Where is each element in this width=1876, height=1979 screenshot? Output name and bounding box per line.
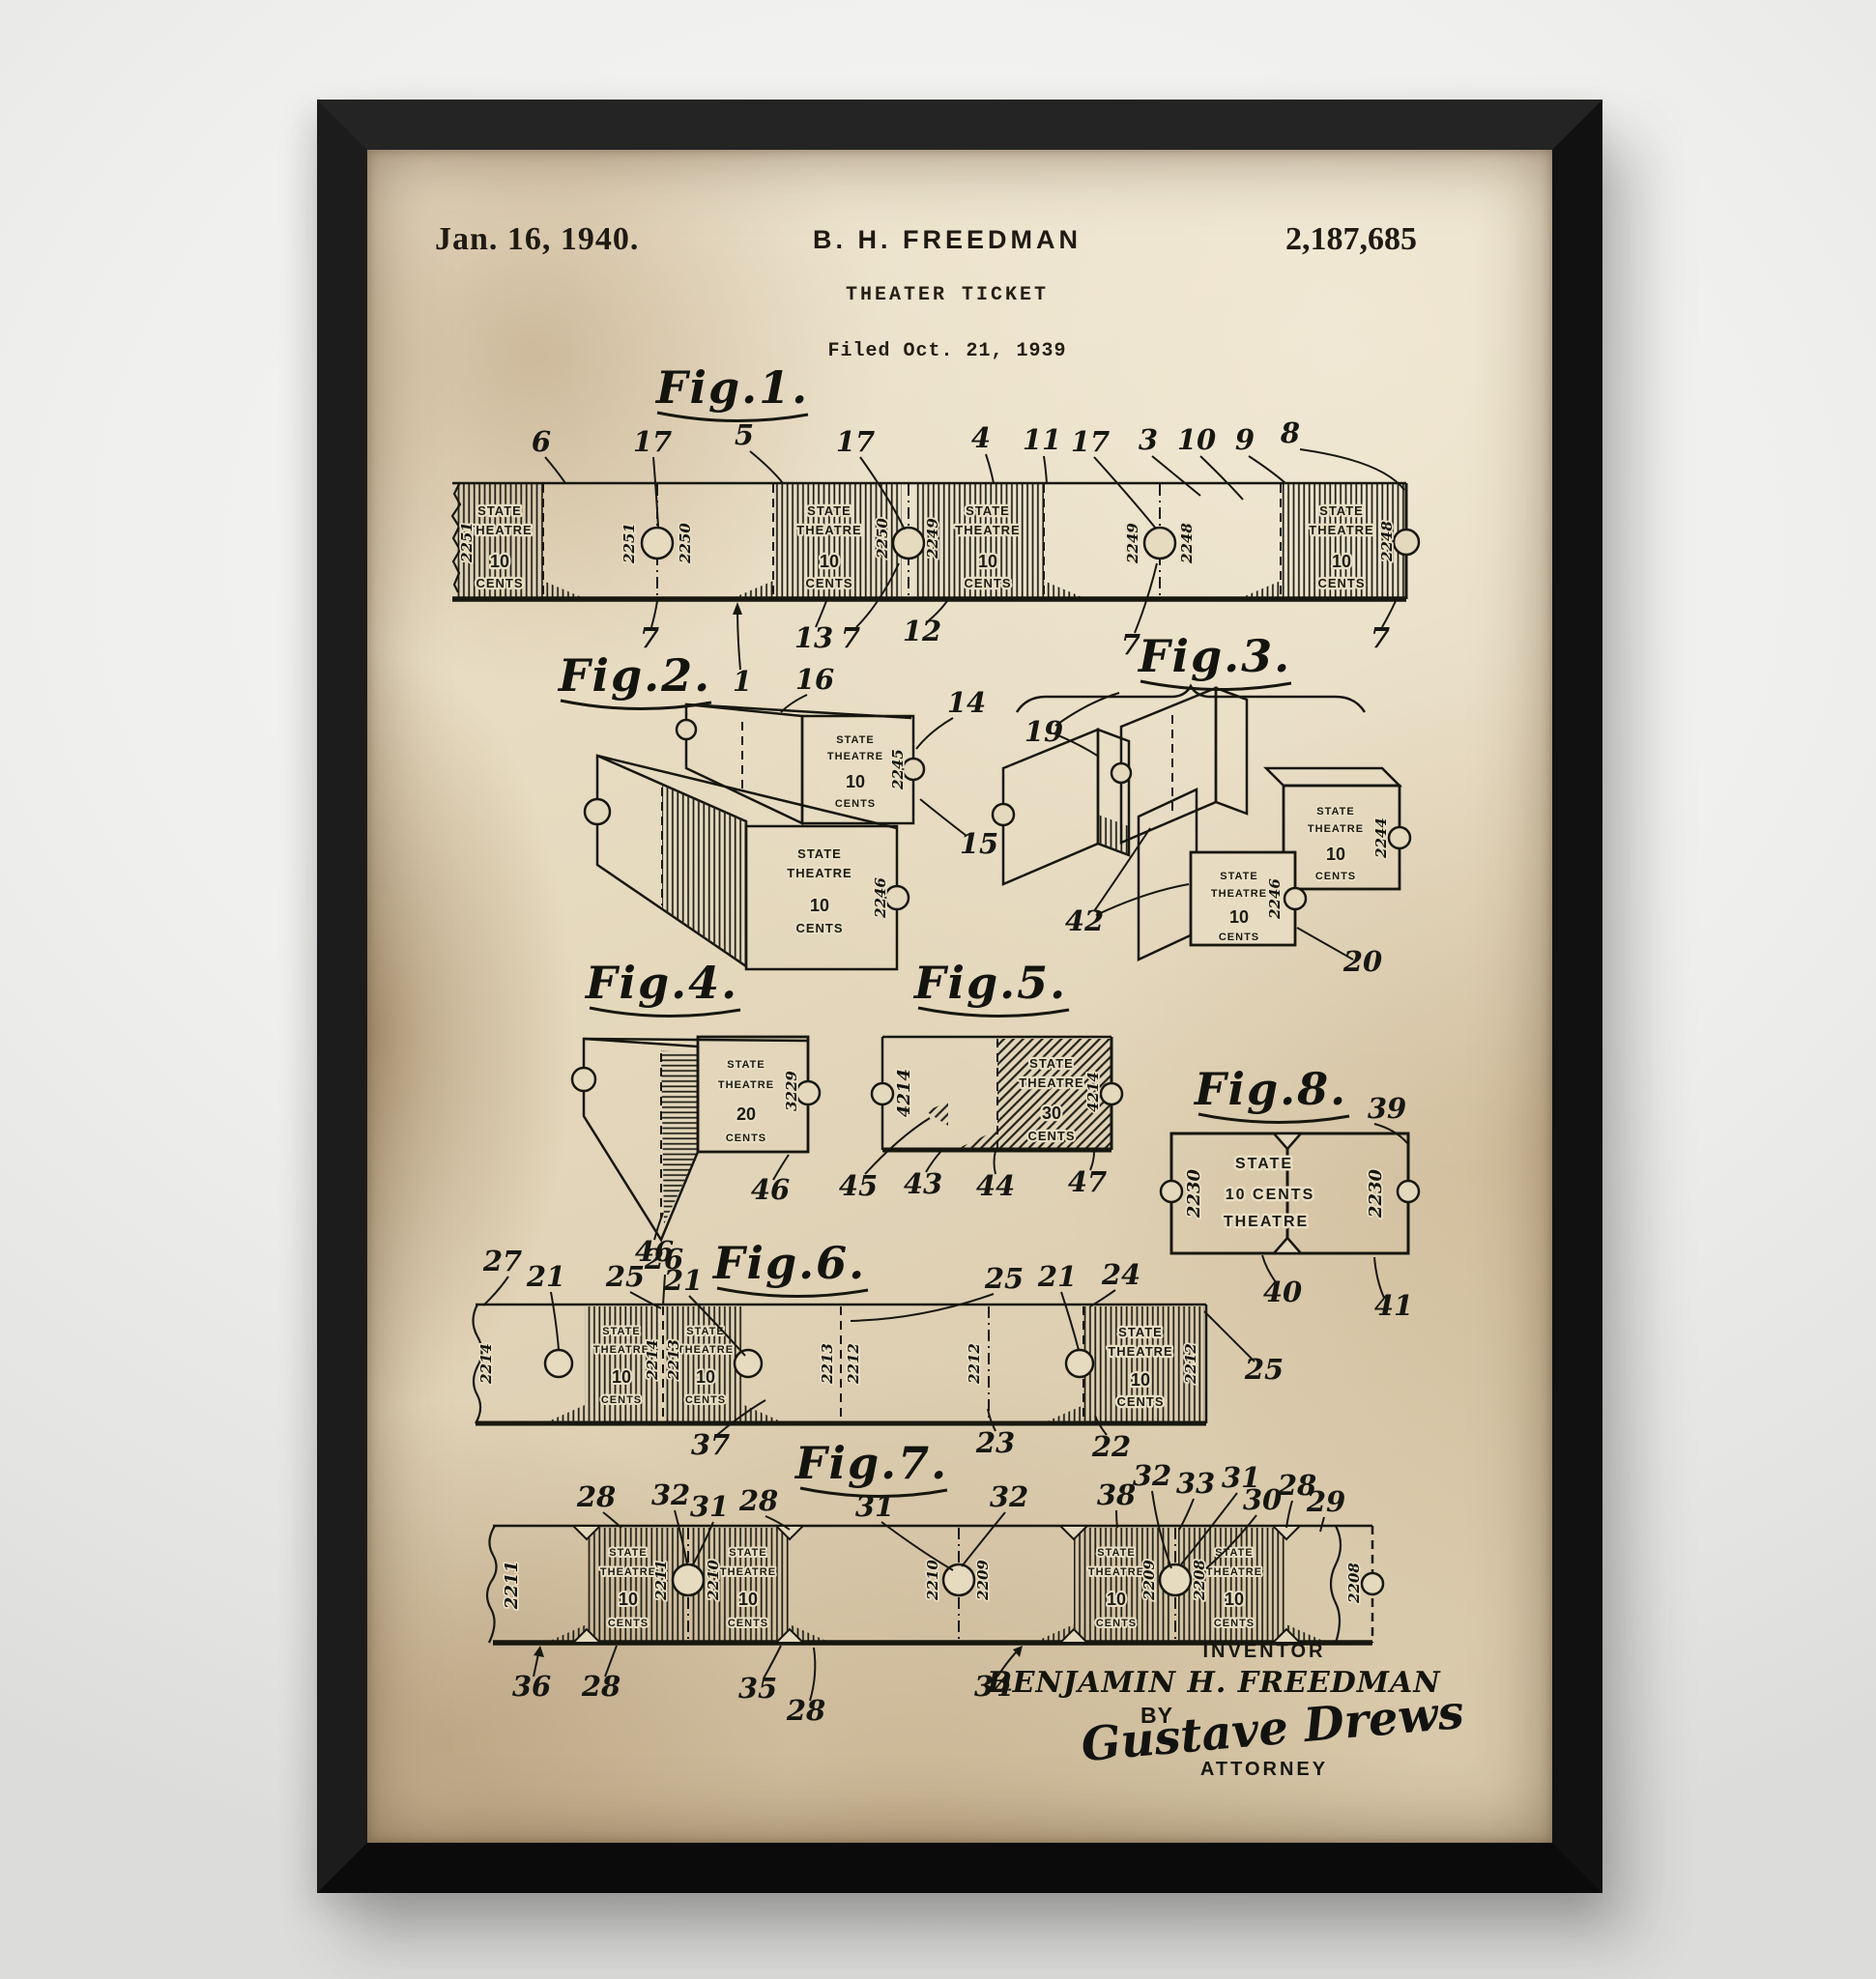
callout-number: 31 (855, 1490, 894, 1523)
fig8-title-swash (1198, 1114, 1349, 1123)
fig3-top-flap (1266, 768, 1400, 786)
callout-number: 13 (794, 621, 833, 654)
callout-leader (781, 695, 807, 712)
ticket-text: CENTS (728, 1618, 768, 1629)
serial-number: 2212 (845, 1343, 862, 1385)
callout-number: 31 (690, 1490, 729, 1523)
figure-4: Fig.4. STATE THEATRE 20 CENTS 3229 46 46 (572, 957, 820, 1268)
callout-number: 3 (1139, 423, 1158, 456)
fig5-hatch-wedge (959, 1130, 997, 1148)
ticket-text: STATE (602, 1326, 640, 1337)
serial-number: 2244 (1372, 817, 1390, 859)
fig1-hatch-wedge (1240, 581, 1281, 598)
fig7-torn-edge (487, 1526, 497, 1643)
callout-number: 35 (738, 1672, 777, 1705)
callout-leader (1200, 456, 1243, 500)
serial-number: 2251 (621, 523, 638, 564)
serial-number: 2213 (819, 1343, 836, 1385)
ticket-text: STATE (729, 1547, 766, 1559)
figure-6: Fig.6. (474, 1237, 1284, 1463)
fig8-title: Fig.8. (1193, 1063, 1347, 1115)
callout-leader (920, 799, 967, 836)
callout-leader (995, 1151, 996, 1174)
fig1-title-swash (657, 413, 808, 421)
fig8-junction-notch (1274, 1238, 1301, 1253)
fig1-hatch-wedge (543, 581, 584, 598)
ticket-text: CENTS (1219, 932, 1259, 943)
fig6-punch-hole (1066, 1350, 1093, 1377)
fig7-punch-hole (1160, 1564, 1191, 1595)
serial-number: 2208 (1191, 1560, 1208, 1601)
fig3-side-notch (1284, 888, 1306, 909)
fig4-title-swash (590, 1008, 740, 1017)
serial-number: 2213 (665, 1339, 682, 1381)
fig7-wavy-divider (1331, 1526, 1341, 1643)
callout-number: 7 (1371, 621, 1390, 654)
ticket-text: STATE (1235, 1156, 1293, 1172)
ticket-text: 10 (1326, 845, 1345, 864)
callout-number: 5 (735, 418, 754, 451)
ticket-text: STATE (477, 503, 522, 518)
ticket-text: CENTS (1027, 1129, 1075, 1143)
ticket-text: CENTS (1096, 1618, 1137, 1629)
callout-number: 16 (795, 663, 834, 696)
callout-number: 20 (1342, 945, 1382, 978)
ticket-text: CENTS (685, 1394, 726, 1406)
callout-leader (962, 1512, 1005, 1566)
callout-leader (1320, 1517, 1324, 1532)
callout-leader (1094, 457, 1156, 529)
callout-leader (545, 457, 565, 483)
fig2-title: Fig.2. (557, 649, 711, 702)
serial-number: 2214 (644, 1339, 661, 1381)
ticket-text: THEATRE (1308, 823, 1364, 835)
ticket-text: CENTS (1214, 1618, 1255, 1629)
fig6-title-swash (717, 1288, 868, 1297)
callout-number: 22 (1091, 1430, 1131, 1463)
callout-number: 47 (1068, 1165, 1107, 1198)
ticket-text: STATE (1029, 1056, 1074, 1071)
patent-drawing: Jan. 16, 1940. B. H. FREEDMAN THEATER TI… (367, 150, 1552, 1843)
fig1-punch-hole (893, 528, 924, 559)
ticket-text: CENTS (476, 576, 523, 590)
patent-date: Jan. 16, 1940. (435, 221, 639, 257)
ticket-text: CENTS (964, 576, 1011, 590)
serial-number: 2249 (1124, 523, 1141, 564)
serial-number: 2209 (974, 1560, 992, 1601)
callout-number: 37 (691, 1428, 730, 1461)
ticket-text: STATE (1097, 1547, 1135, 1559)
callout-number: 28 (786, 1694, 825, 1727)
callout-number: 32 (990, 1480, 1028, 1513)
ticket-text: THEATRE (796, 523, 861, 537)
ticket-text: 10 (738, 1590, 758, 1609)
callout-leader (551, 1292, 559, 1350)
fig7-title: Fig.7. (794, 1437, 948, 1489)
ticket-text: THEATRE (1211, 888, 1267, 900)
ticket-text: THEATRE (718, 1079, 774, 1091)
callout-number: 17 (1071, 425, 1110, 458)
signature-block: INVENTOR BENJAMIN H. FREEDMAN BY Gustave… (986, 1641, 1466, 1780)
callout-number: 17 (633, 425, 672, 458)
callout-number: 25 (984, 1262, 1024, 1295)
serial-number: 4214 (1084, 1072, 1102, 1112)
ticket-text: THEATRE (1088, 1566, 1144, 1578)
fig1-punch-hole (642, 528, 673, 559)
picture-frame: Jan. 16, 1940. B. H. FREEDMAN THEATER TI… (317, 100, 1602, 1893)
callout-number: 9 (1235, 423, 1255, 456)
ticket-text: STATE (1118, 1325, 1163, 1339)
ticket-text: 10 (978, 552, 997, 571)
ticket-text: 10 (1229, 907, 1249, 927)
ticket-text: STATE (966, 503, 1010, 518)
ticket-text: STATE (1220, 871, 1257, 882)
ticket-text: 10 (846, 772, 865, 791)
callout-number: 33 (1176, 1467, 1215, 1500)
serial-number: 2212 (1182, 1343, 1199, 1385)
ticket-text: STATE (797, 846, 842, 861)
callout-number: 12 (903, 615, 941, 647)
serial-number: 2230 (1366, 1168, 1386, 1219)
ticket-text: THEATRE (1108, 1344, 1172, 1359)
fig6-punch-hole (735, 1350, 762, 1377)
fig6-hatch-wedge (548, 1405, 585, 1421)
fig2-side-notch (585, 799, 610, 824)
patent-header: Jan. 16, 1940. B. H. FREEDMAN THEATER TI… (435, 221, 1417, 362)
callout-number: 8 (1280, 416, 1300, 449)
fig7-punch-hole (943, 1564, 974, 1595)
ticket-text: THEATRE (787, 866, 851, 880)
fig2-side-notch (677, 720, 696, 739)
serial-number: 2212 (966, 1343, 983, 1385)
fig3-side-notch (993, 804, 1014, 825)
callout-number: 25 (605, 1260, 645, 1293)
figure-8: Fig.8. 2230 2230 STATE 10 CENTS THEATRE … (1161, 1063, 1419, 1322)
patent-title: THEATER TICKET (846, 284, 1049, 306)
ticket-text: 10 (1332, 552, 1351, 571)
fig2-open-edge (597, 756, 897, 828)
ticket-text: 10 (1107, 1590, 1126, 1609)
fig8-side-notch (1161, 1181, 1182, 1202)
attorney-label: ATTORNEY (1200, 1759, 1328, 1780)
callout-number: 4 (971, 421, 991, 454)
fig8-side-notch (1398, 1181, 1419, 1202)
ticket-text: THEATRE (593, 1344, 649, 1356)
ticket-text: CENTS (795, 921, 843, 935)
callout-leader (916, 718, 953, 749)
callout-leader (1204, 1311, 1255, 1362)
photo-scene: Jan. 16, 1940. B. H. FREEDMAN THEATER TI… (0, 0, 1876, 1979)
inventor-label: INVENTOR (1203, 1641, 1326, 1662)
callout-number: 6 (532, 425, 551, 458)
fig3-side-notch (1389, 827, 1410, 848)
ticket-text: 10 (612, 1367, 631, 1387)
serial-number: 2230 (1184, 1168, 1204, 1219)
callout-leader (483, 1276, 508, 1305)
fig5-side-notch (1101, 1083, 1122, 1104)
ticket-text: 10 CENTS (1226, 1187, 1314, 1203)
patent-paper: Jan. 16, 1940. B. H. FREEDMAN THEATER TI… (367, 150, 1552, 1843)
ticket-text: STATE (807, 503, 851, 518)
ticket-text: CENTS (601, 1394, 642, 1406)
callout-number: 36 (512, 1670, 551, 1703)
ticket-text: THEATRE (1019, 1076, 1083, 1090)
callout-number: 27 (482, 1245, 522, 1277)
ticket-text: THEATRE (955, 523, 1020, 537)
serial-number: 2246 (872, 877, 889, 919)
callout-leader (1249, 456, 1285, 483)
fig3-blank-ticket-side (1216, 688, 1247, 814)
callout-number: 32 (1133, 1459, 1171, 1492)
callout-number: 46 (751, 1173, 790, 1206)
ticket-text: 10 (1131, 1370, 1150, 1390)
callout-number: 10 (1177, 423, 1216, 456)
serial-number: 2210 (924, 1560, 941, 1601)
patent-inventor: B. H. FREEDMAN (813, 225, 1082, 254)
callout-number: 15 (960, 827, 998, 860)
serial-number: 2208 (1345, 1563, 1363, 1604)
callout-number: 44 (976, 1169, 1015, 1202)
callout-leader (865, 1118, 930, 1174)
ticket-text: STATE (1215, 1547, 1253, 1559)
callout-number: 17 (836, 425, 875, 458)
patent-number: 2,187,685 (1285, 221, 1417, 257)
serial-number: 2211 (502, 1561, 522, 1610)
figure-2: Fig.2. STATE THEATRE 10 CENTS 2246 (557, 649, 998, 969)
callout-number: 11 (1023, 423, 1061, 456)
fig6-punch-hole (545, 1350, 572, 1377)
ticket-text: THEATRE (827, 751, 883, 762)
fig6-hatch-wedge (744, 1405, 781, 1421)
callout-leader (737, 606, 740, 670)
fig3-hatch-wedge (1098, 815, 1129, 855)
serial-number: 3229 (783, 1071, 800, 1111)
ticket-text: THEATRE (600, 1566, 656, 1578)
fig3-blank-ticket (1003, 730, 1098, 884)
fig4-side-notch (572, 1068, 595, 1091)
serial-number: 2250 (874, 518, 891, 559)
serial-number: 2248 (1378, 521, 1396, 562)
ticket-text: 10 (1225, 1590, 1244, 1609)
fig6-hatch-wedge (1047, 1405, 1083, 1421)
callout-number: 21 (526, 1260, 565, 1293)
fig7-punch-hole (673, 1564, 704, 1595)
callout-number: 28 (576, 1480, 616, 1513)
ticket-text: STATE (727, 1059, 765, 1071)
fig6-title: Fig.6. (711, 1237, 866, 1289)
callout-leader (1116, 1510, 1117, 1528)
serial-number: 2250 (677, 523, 694, 564)
callout-number: 41 (1374, 1289, 1413, 1322)
ticket-text: CENTS (805, 576, 852, 590)
ticket-text: THEATRE (1224, 1214, 1309, 1230)
ticket-text: THEATRE (720, 1566, 776, 1578)
callout-number: 39 (1368, 1092, 1406, 1125)
figure-5: Fig.5. 4214 STATE THEATRE 30 (839, 957, 1122, 1202)
ticket-text: CENTS (1317, 576, 1365, 590)
fig4-title: Fig.4. (584, 957, 738, 1009)
ticket-text: CENTS (1116, 1394, 1164, 1409)
ticket-text: CENTS (726, 1133, 766, 1144)
callout-number: 24 (1101, 1258, 1140, 1291)
ticket-text: THEATRE (678, 1344, 734, 1356)
callout-number: 42 (1065, 904, 1104, 937)
ticket-text: CENTS (608, 1618, 649, 1629)
fig1-title: Fig.1. (654, 361, 809, 414)
fig1-punch-hole (1144, 528, 1175, 559)
callout-number: 19 (1025, 715, 1063, 748)
fig1-hatch-wedge (733, 581, 773, 598)
serial-number: 2214 (477, 1343, 495, 1385)
callout-number: 43 (904, 1167, 942, 1200)
ticket-text: 10 (490, 552, 509, 571)
ticket-text: STATE (1316, 806, 1354, 817)
serial-number: 2248 (1178, 523, 1196, 564)
ticket-text: STATE (609, 1547, 647, 1559)
fig3-title: Fig.3. (1137, 630, 1291, 682)
callout-number: 30 (1243, 1483, 1282, 1516)
fig7-side-notch (1362, 1573, 1383, 1594)
ticket-text: STATE (1319, 503, 1364, 518)
callout-leader (1286, 1501, 1292, 1528)
callout-number: 40 (1263, 1276, 1302, 1308)
callout-number: 29 (1306, 1485, 1345, 1518)
callout-number: 45 (839, 1169, 878, 1202)
callout-leader (1297, 928, 1353, 960)
serial-number: 2251 (458, 522, 476, 563)
callout-number: 21 (663, 1264, 703, 1297)
ticket-text: 10 (696, 1367, 715, 1387)
ticket-text: THEATRE (467, 523, 532, 537)
ticket-text: 20 (736, 1104, 756, 1124)
ticket-text: CENTS (835, 798, 876, 810)
leader-arrowhead (534, 1646, 544, 1657)
fig5-side-notch (872, 1083, 893, 1104)
callout-number: 38 (1097, 1478, 1136, 1511)
ticket-text: THEATRE (1309, 523, 1373, 537)
ticket-text: 10 (810, 896, 829, 915)
ticket-text: THEATRE (1206, 1566, 1262, 1578)
callout-leader (750, 451, 783, 483)
callout-leader (881, 1522, 953, 1570)
serial-number: 4214 (894, 1069, 914, 1117)
callout-leader (1044, 456, 1047, 483)
callout-number: 21 (1037, 1260, 1077, 1293)
callout-leader (1061, 1292, 1079, 1350)
fig3-side-notch (1111, 763, 1131, 783)
callout-number: 28 (738, 1484, 778, 1517)
callout-number: 32 (651, 1478, 690, 1511)
fig3-blank-ticket (1121, 688, 1216, 843)
fig8-junction-notch (1274, 1133, 1301, 1149)
callout-leader (630, 1292, 661, 1308)
callout-leader (851, 1294, 994, 1321)
fig5-title-swash (918, 1008, 1069, 1017)
serial-number: 2210 (705, 1560, 722, 1601)
fig1-hatch-wedge (1044, 581, 1084, 598)
figure-3: Fig.3. STATE (993, 630, 1410, 978)
ticket-text: CENTS (1315, 871, 1356, 882)
patent-filed-date: Filed Oct. 21, 1939 (827, 340, 1066, 362)
ticket-text: 10 (820, 552, 839, 571)
fig5-title: Fig.5. (912, 957, 1067, 1009)
callout-number: 14 (947, 686, 986, 719)
fig5-hatch-mark (926, 1102, 948, 1126)
serial-number: 2249 (924, 518, 941, 559)
ticket-text: 10 (619, 1590, 638, 1609)
serial-number: 2209 (1140, 1560, 1158, 1601)
fig1-side-notch (1394, 530, 1419, 555)
serial-number: 2246 (1266, 878, 1284, 920)
callout-number: 28 (581, 1670, 621, 1703)
callout-number: 1 (733, 665, 752, 698)
ticket-text: STATE (836, 734, 874, 746)
serial-number: 2245 (889, 749, 907, 790)
ticket-text: 30 (1042, 1104, 1061, 1123)
leader-arrowhead (733, 602, 742, 615)
serial-number: 2211 (652, 1560, 670, 1601)
callout-leader (986, 454, 994, 483)
callout-leader (810, 1648, 815, 1701)
